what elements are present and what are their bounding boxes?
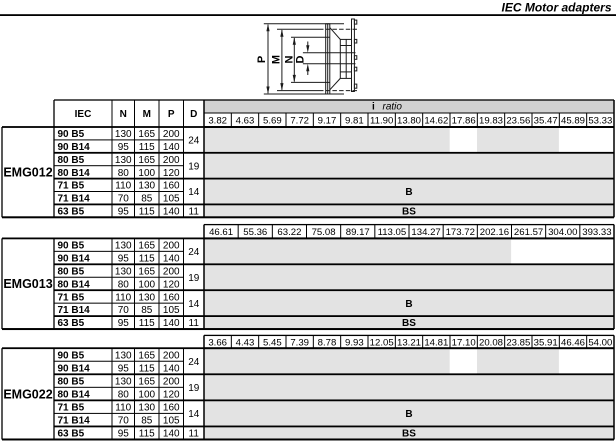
svg-text:165: 165	[138, 266, 155, 277]
svg-text:14.81: 14.81	[424, 337, 448, 348]
svg-text:P: P	[256, 56, 268, 63]
svg-text:3.66: 3.66	[208, 337, 227, 348]
svg-text:9.81: 9.81	[345, 116, 364, 127]
svg-text:17.86: 17.86	[452, 116, 476, 127]
svg-text:110: 110	[115, 292, 131, 303]
svg-text:63 B5: 63 B5	[58, 429, 85, 440]
svg-text:140: 140	[163, 142, 180, 153]
svg-text:23.56: 23.56	[506, 116, 530, 127]
svg-text:9.17: 9.17	[318, 116, 337, 127]
svg-text:200: 200	[163, 266, 180, 277]
svg-text:19: 19	[188, 383, 200, 394]
svg-text:140: 140	[163, 253, 180, 264]
svg-text:53.33: 53.33	[588, 116, 612, 127]
svg-text:115: 115	[139, 429, 155, 440]
svg-text:71 B5: 71 B5	[58, 402, 85, 413]
svg-text:130: 130	[115, 266, 132, 277]
svg-text:80: 80	[118, 279, 130, 290]
svg-text:110: 110	[115, 402, 131, 413]
svg-text:85: 85	[141, 305, 153, 316]
svg-text:115: 115	[139, 142, 155, 153]
svg-text:54.00: 54.00	[588, 337, 612, 348]
svg-text:7.39: 7.39	[290, 337, 309, 348]
svg-text:45.89: 45.89	[561, 116, 585, 127]
svg-text:304.00: 304.00	[548, 227, 577, 238]
svg-text:D: D	[295, 55, 307, 63]
svg-text:80 B5: 80 B5	[58, 376, 85, 387]
svg-text:46.46: 46.46	[561, 337, 585, 348]
svg-text:90 B14: 90 B14	[58, 363, 91, 374]
svg-text:19: 19	[188, 273, 200, 284]
svg-text:173.72: 173.72	[446, 227, 475, 238]
svg-text:71 B14: 71 B14	[58, 194, 91, 205]
svg-text:4.43: 4.43	[236, 337, 255, 348]
svg-text:4.63: 4.63	[236, 116, 255, 127]
svg-text:63.22: 63.22	[277, 227, 301, 238]
svg-text:130: 130	[115, 155, 132, 166]
svg-text:165: 165	[138, 350, 155, 361]
svg-text:200: 200	[163, 155, 180, 166]
svg-text:63 B5: 63 B5	[58, 318, 85, 329]
svg-text:EMG012: EMG012	[3, 166, 52, 180]
svg-text:90 B14: 90 B14	[58, 253, 91, 264]
svg-text:M: M	[143, 109, 151, 120]
svg-text:140: 140	[163, 429, 180, 440]
svg-text:70: 70	[118, 194, 130, 205]
svg-text:110: 110	[115, 181, 131, 192]
svg-text:160: 160	[163, 402, 180, 413]
svg-text:24: 24	[188, 357, 200, 368]
svg-text:115: 115	[139, 253, 155, 264]
svg-text:130: 130	[138, 402, 155, 413]
svg-text:140: 140	[163, 318, 180, 329]
svg-text:80 B14: 80 B14	[58, 168, 91, 179]
svg-text:71 B5: 71 B5	[58, 181, 85, 192]
svg-text:165: 165	[138, 155, 155, 166]
svg-text:95: 95	[118, 363, 130, 374]
svg-text:80: 80	[118, 389, 130, 400]
svg-text:IEC Motor adapters: IEC Motor adapters	[501, 0, 611, 14]
svg-text:90 B5: 90 B5	[58, 240, 85, 251]
svg-text:120: 120	[163, 168, 180, 179]
svg-text:BS: BS	[402, 429, 416, 440]
svg-text:105: 105	[163, 305, 180, 316]
svg-text:35.47: 35.47	[534, 116, 558, 127]
svg-text:EMG022: EMG022	[3, 387, 52, 401]
svg-text:20.08: 20.08	[479, 337, 503, 348]
svg-text:IEC: IEC	[75, 109, 92, 120]
svg-text:N: N	[120, 109, 127, 120]
svg-text:55.36: 55.36	[243, 227, 267, 238]
svg-text:100: 100	[138, 168, 155, 179]
svg-text:100: 100	[138, 279, 155, 290]
svg-text:130: 130	[115, 376, 132, 387]
svg-text:89.17: 89.17	[346, 227, 370, 238]
svg-text:23.85: 23.85	[506, 337, 530, 348]
svg-text:80 B5: 80 B5	[58, 266, 85, 277]
svg-text:19: 19	[188, 161, 200, 172]
svg-text:85: 85	[141, 416, 153, 427]
svg-text:3.82: 3.82	[208, 116, 227, 127]
svg-text:85: 85	[141, 194, 153, 205]
svg-text:24: 24	[188, 136, 200, 147]
svg-text:95: 95	[118, 253, 130, 264]
svg-text:160: 160	[163, 292, 180, 303]
svg-text:63 B5: 63 B5	[58, 206, 85, 217]
svg-text:115: 115	[139, 363, 155, 374]
svg-text:165: 165	[138, 376, 155, 387]
svg-text:80: 80	[118, 168, 130, 179]
svg-text:P: P	[168, 109, 175, 120]
svg-text:165: 165	[138, 240, 155, 251]
svg-text:11.90: 11.90	[370, 116, 393, 127]
svg-text:130: 130	[115, 129, 132, 140]
svg-text:200: 200	[163, 350, 180, 361]
svg-text:202.16: 202.16	[480, 227, 509, 238]
svg-text:B: B	[405, 299, 412, 310]
svg-text:BS: BS	[402, 318, 416, 329]
svg-text:BS: BS	[402, 206, 416, 217]
svg-text:140: 140	[163, 363, 180, 374]
svg-text:46.61: 46.61	[209, 227, 233, 238]
svg-text:19.83: 19.83	[479, 116, 503, 127]
svg-text:24: 24	[188, 247, 200, 258]
svg-text:11: 11	[189, 429, 200, 440]
svg-text:130: 130	[115, 350, 132, 361]
svg-text:95: 95	[118, 206, 130, 217]
svg-text:115: 115	[139, 318, 155, 329]
svg-text:71 B14: 71 B14	[58, 416, 91, 427]
svg-text:115: 115	[139, 206, 155, 217]
svg-text:105: 105	[163, 194, 180, 205]
svg-text:B: B	[405, 187, 412, 198]
svg-text:14: 14	[188, 409, 200, 420]
svg-text:80 B14: 80 B14	[58, 279, 91, 290]
svg-text:13.21: 13.21	[397, 337, 421, 348]
svg-text:130: 130	[115, 240, 132, 251]
svg-text:70: 70	[118, 305, 130, 316]
svg-text:130: 130	[138, 181, 155, 192]
svg-text:105: 105	[163, 416, 180, 427]
svg-text:200: 200	[163, 376, 180, 387]
svg-text:13.80: 13.80	[397, 116, 421, 127]
svg-text:165: 165	[138, 129, 155, 140]
svg-text:75.08: 75.08	[312, 227, 336, 238]
svg-text:8.78: 8.78	[318, 337, 337, 348]
svg-text:12.05: 12.05	[370, 337, 394, 348]
svg-text:80 B5: 80 B5	[58, 155, 85, 166]
svg-text:261.57: 261.57	[514, 227, 543, 238]
svg-text:130: 130	[138, 292, 155, 303]
svg-text:71 B14: 71 B14	[58, 305, 91, 316]
svg-text:200: 200	[163, 240, 180, 251]
svg-text:14.62: 14.62	[424, 116, 448, 127]
svg-text:120: 120	[163, 389, 180, 400]
svg-text:113.05: 113.05	[378, 227, 407, 238]
svg-text:95: 95	[118, 142, 130, 153]
svg-text:9.93: 9.93	[345, 337, 364, 348]
svg-text:90 B14: 90 B14	[58, 142, 91, 153]
svg-text:71 B5: 71 B5	[58, 292, 85, 303]
svg-text:7.72: 7.72	[290, 116, 309, 127]
svg-text:80 B14: 80 B14	[58, 389, 91, 400]
svg-text:200: 200	[163, 129, 180, 140]
svg-text:35.91: 35.91	[534, 337, 558, 348]
svg-text:EMG013: EMG013	[3, 277, 52, 291]
svg-text:5.69: 5.69	[263, 116, 282, 127]
svg-text:D: D	[190, 109, 197, 120]
svg-text:95: 95	[118, 429, 130, 440]
svg-text:90 B5: 90 B5	[58, 350, 85, 361]
svg-text:M: M	[271, 55, 283, 64]
svg-text:11: 11	[189, 206, 200, 217]
svg-text:70: 70	[118, 416, 130, 427]
svg-text:90 B5: 90 B5	[58, 129, 85, 140]
svg-text:393.33: 393.33	[582, 227, 611, 238]
svg-text:140: 140	[163, 206, 180, 217]
svg-text:17.10: 17.10	[452, 337, 476, 348]
svg-text:11: 11	[189, 318, 200, 329]
svg-text:5.45: 5.45	[263, 337, 282, 348]
svg-text:14: 14	[188, 187, 200, 198]
svg-text:14: 14	[188, 299, 200, 310]
svg-text:95: 95	[118, 318, 130, 329]
svg-text:120: 120	[163, 279, 180, 290]
svg-text:B: B	[405, 409, 412, 420]
svg-text:160: 160	[163, 181, 180, 192]
svg-text:134.27: 134.27	[411, 227, 440, 238]
svg-text:100: 100	[138, 389, 155, 400]
